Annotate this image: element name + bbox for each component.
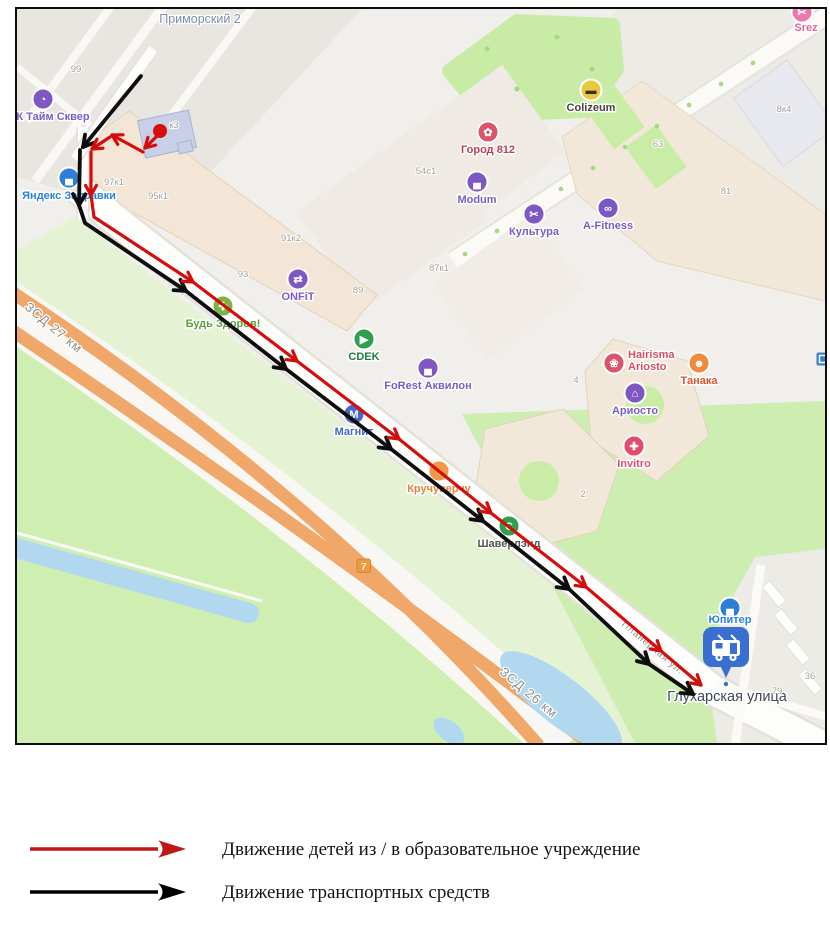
house-number: 87к1 [429,263,449,274]
gorod-812-glyph-icon: ✿ [483,127,492,139]
modum-glyph-icon: ▄ [473,177,481,190]
poi-srez-label: Srez [794,22,818,34]
time-square-glyph-icon: ◔ [40,94,47,106]
route-segment [79,150,80,205]
yandex-zapravki-glyph-icon: ▄ [65,173,73,186]
forest-akvilon-glyph-icon: ▄ [424,363,432,376]
map: ЗСД 27 кмЗСД 26 кмПланерная ул.Приморски… [15,7,827,745]
house-number: 97к1 [104,177,124,188]
poi-kultura-label: Культура [509,226,560,238]
children-route-arrow [28,838,188,860]
house-number: 79 [772,686,783,697]
cdek-glyph-icon: ▶ [359,334,369,346]
house-number: 4 [573,375,578,386]
house-number: 81 [721,186,732,197]
poi-a-fitness-label: A-Fitness [583,220,633,232]
poi-ariosto-label: Ариосто [612,405,658,417]
house-number: 63 [653,139,664,150]
route-arrowhead [480,511,491,513]
srez-glyph-icon: ✂ [797,9,806,19]
poi-colizeum-label: Colizeum [567,102,616,114]
invitro-glyph-icon: ✚ [629,441,638,453]
house-number: 99 [71,64,82,75]
house-number: к3 [169,120,178,131]
district-label: Приморский 2 [159,12,241,26]
onfit-glyph-icon: ⇄ [293,274,302,286]
poi-jupiter-label: Юпитер [709,614,752,626]
poi-modum-label: Modum [457,194,496,206]
legend-row-vehicles: Движение транспортных средств [0,881,830,905]
house-number: 36 [805,671,816,682]
vehicle-route-arrow [28,881,188,903]
stop-point-dot [724,682,728,686]
poi-forest-akvilon-label: FoRest Аквилон [384,380,472,392]
poi-invitro-label: Invitro [617,458,651,470]
route-arrowhead [681,693,693,694]
ariosto-glyph-icon: ⌂ [632,388,639,400]
house-number: 95к1 [148,191,168,202]
kultura-glyph-icon: ✂ [529,209,538,221]
courtyard-green [519,461,559,501]
poi-cdek-label: CDEK [348,351,379,363]
house-number: 8к4 [777,104,792,115]
house-number: 89 [353,285,364,296]
legend-children-label: Движение детей из / в образовательное уч… [222,839,640,861]
route-scheme-page: ЗСД 27 кмЗСД 26 кмПланерная ул.Приморски… [0,0,830,926]
legend-row-children: Движение детей из / в образовательное уч… [0,838,830,862]
poi-yandex-zapravki-label: Яндекс Заправки [22,190,116,202]
school-entrance-dot [153,124,167,138]
colizeum-glyph-icon: ▬ [586,85,597,97]
bus-stop-name-label: Глухарская улица [667,689,788,705]
house-number: 54с1 [416,166,437,177]
route-arrowhead [182,281,193,282]
hairisma-ariosto-glyph-icon: ❀ [609,358,618,370]
map-canvas: ЗСД 27 кмЗСД 26 кмПланерная ул.Приморски… [17,9,825,743]
route-arrowhead [575,585,586,587]
route-arrowhead [650,649,661,651]
poi-onfit-label: ONFiT [282,291,315,303]
poi-time-square-label: К Тайм Сквер [17,111,90,123]
route-arrowhead [388,438,399,439]
house-number: 91к2 [281,233,301,244]
house-number: 2 [580,489,585,500]
tanaka-glyph-icon: ☻ [693,358,705,370]
route-arrowhead [286,360,297,361]
poi-tanaka-label: Танака [681,375,719,387]
transit-indicator-icon [817,353,826,366]
poi-gorod-812-label: Город 812 [461,144,515,156]
road-number-text: 7 [361,562,366,573]
a-fitness-glyph-icon: ∞ [604,203,612,215]
route-arrowhead [83,135,85,147]
house-number: 93 [238,269,249,280]
legend-vehicles-label: Движение транспортных средств [222,882,490,904]
route-arrowhead [690,683,701,685]
